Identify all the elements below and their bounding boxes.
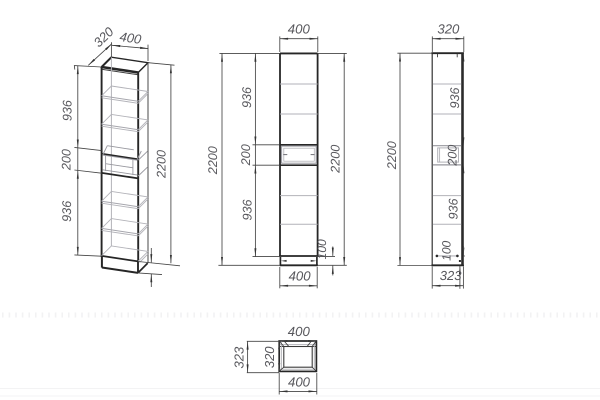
svg-text:320: 320: [91, 24, 118, 50]
svg-text:320: 320: [262, 346, 277, 368]
svg-text:200: 200: [239, 144, 253, 166]
svg-text:320: 320: [437, 21, 460, 36]
svg-text:400: 400: [289, 268, 312, 283]
svg-text:100: 100: [315, 239, 329, 259]
svg-text:200: 200: [446, 145, 460, 167]
svg-text:936: 936: [60, 201, 74, 222]
svg-text:323: 323: [440, 268, 462, 283]
svg-text:2200: 2200: [206, 146, 220, 175]
svg-text:2200: 2200: [328, 145, 342, 174]
svg-text:936: 936: [448, 87, 462, 108]
svg-text:100: 100: [440, 240, 454, 260]
svg-text:400: 400: [288, 375, 311, 390]
svg-text:936: 936: [61, 100, 75, 121]
svg-text:400: 400: [288, 324, 311, 339]
svg-text:400: 400: [288, 21, 311, 36]
svg-text:936: 936: [240, 87, 254, 108]
svg-text:200: 200: [60, 149, 74, 171]
svg-text:323: 323: [231, 346, 246, 368]
svg-text:400: 400: [119, 29, 143, 47]
svg-text:936: 936: [447, 198, 461, 219]
svg-text:2200: 2200: [154, 150, 168, 179]
svg-text:936: 936: [240, 199, 254, 220]
svg-text:2200: 2200: [385, 141, 399, 170]
